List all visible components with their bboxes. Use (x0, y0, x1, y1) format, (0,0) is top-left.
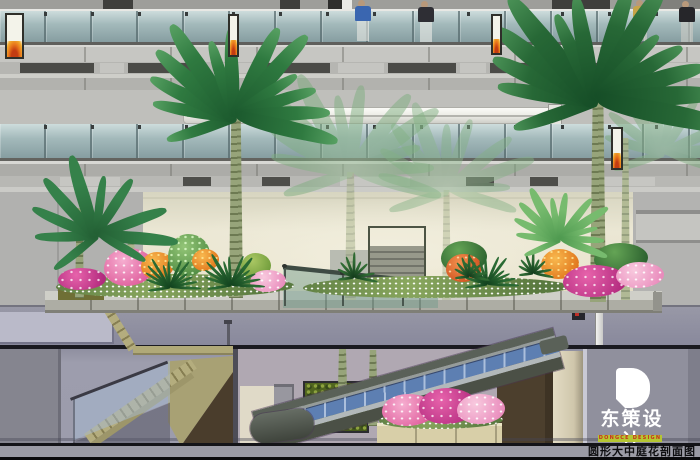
titlebar-layer: 圆形大中庭花剖面图 (0, 0, 700, 460)
atrium-section-rendering: 东策设计 DONGCE DESIGN 圆形大中庭花剖面图 (0, 0, 700, 460)
drawing-title-bar: 圆形大中庭花剖面图 (0, 446, 700, 457)
